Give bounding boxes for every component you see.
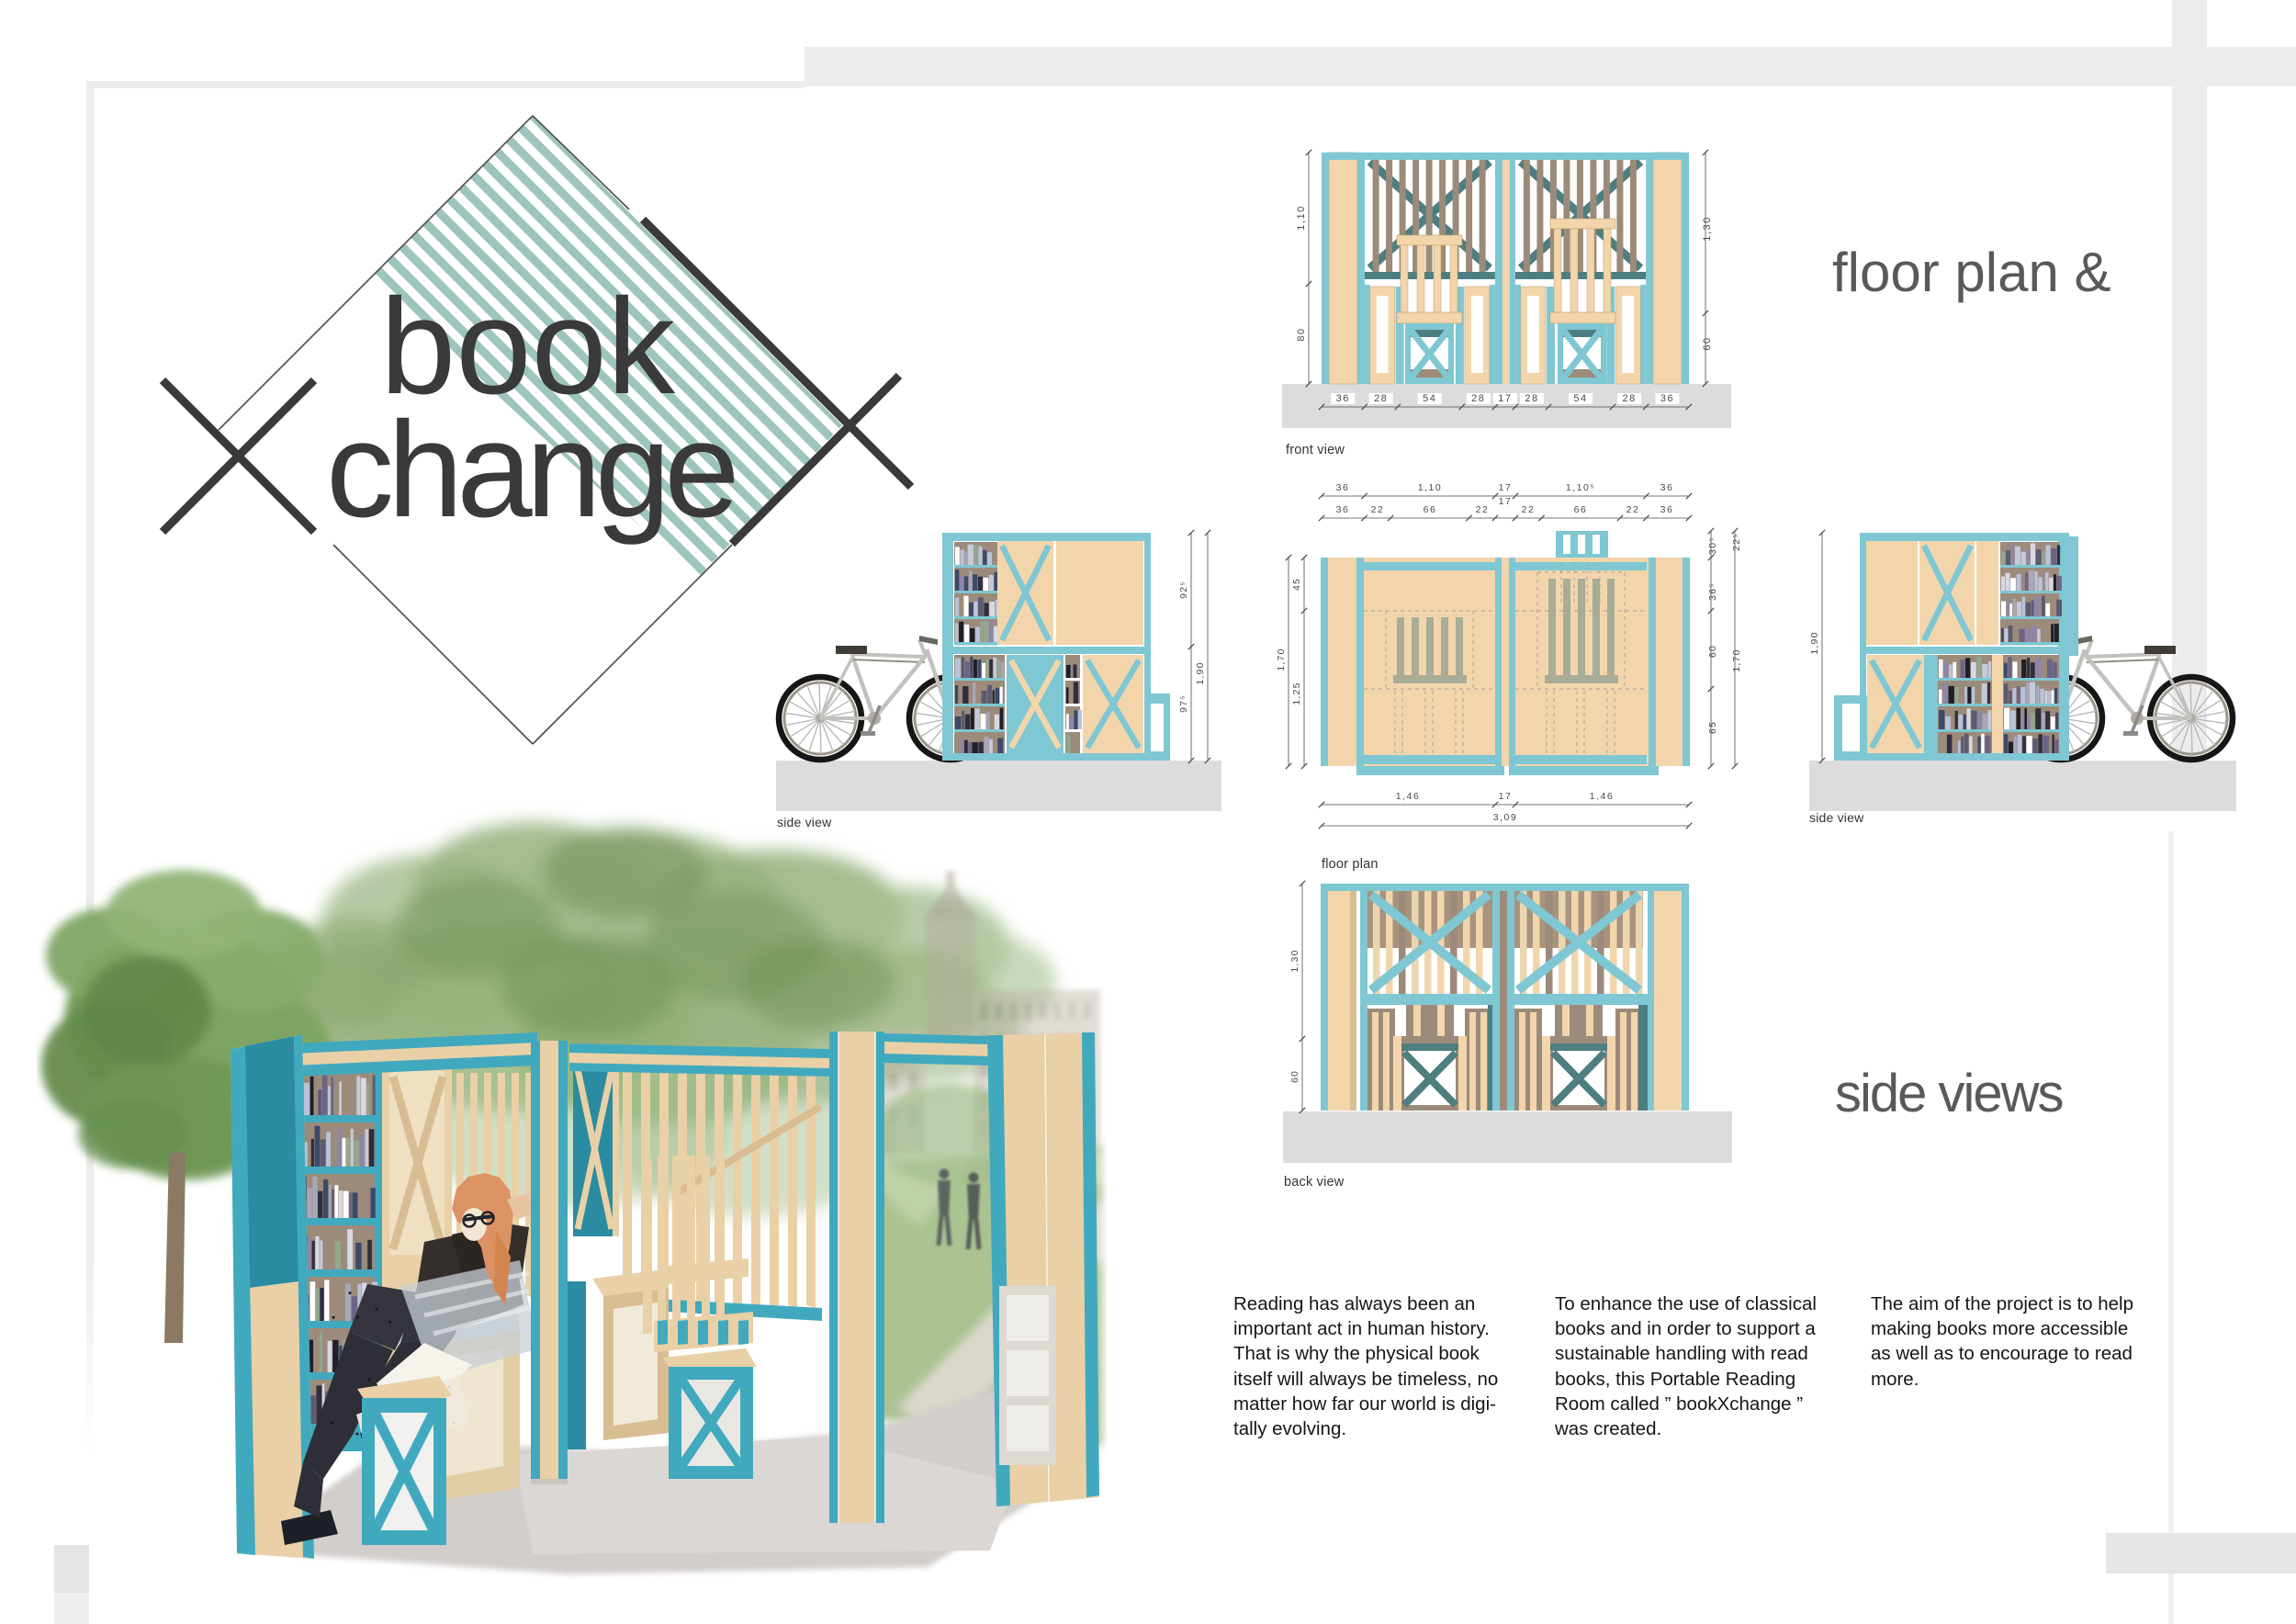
svg-text:30⁵: 30⁵ <box>1707 536 1718 555</box>
svg-text:36: 36 <box>1660 482 1674 493</box>
svg-text:28: 28 <box>1525 393 1538 404</box>
svg-text:22⁵: 22⁵ <box>1731 533 1742 551</box>
svg-text:28: 28 <box>1471 393 1485 404</box>
svg-text:1,10: 1,10 <box>1418 482 1442 493</box>
svg-text:54: 54 <box>1423 393 1436 404</box>
svg-text:60: 60 <box>1289 1070 1300 1083</box>
svg-text:1,46: 1,46 <box>1396 791 1420 802</box>
svg-text:1,90: 1,90 <box>1195 661 1206 684</box>
svg-text:22: 22 <box>1476 504 1490 515</box>
svg-text:1,30: 1,30 <box>1289 949 1300 972</box>
svg-text:side view: side view <box>777 815 832 829</box>
svg-text:92⁵: 92⁵ <box>1178 581 1189 599</box>
svg-text:36: 36 <box>1336 504 1350 515</box>
svg-text:36⁵: 36⁵ <box>1707 582 1718 601</box>
svg-text:80: 80 <box>1296 327 1307 341</box>
svg-text:97⁵: 97⁵ <box>1178 694 1189 713</box>
svg-text:65: 65 <box>1707 721 1718 734</box>
svg-text:1,46: 1,46 <box>1590 791 1614 802</box>
svg-text:17: 17 <box>1499 791 1513 802</box>
svg-text:36: 36 <box>1336 482 1350 493</box>
svg-text:54: 54 <box>1573 393 1587 404</box>
svg-text:1,70: 1,70 <box>1731 648 1742 671</box>
svg-text:45: 45 <box>1291 578 1302 591</box>
svg-text:60: 60 <box>1707 645 1718 658</box>
svg-text:66: 66 <box>1574 504 1588 515</box>
svg-text:36: 36 <box>1660 393 1674 404</box>
svg-text:3,09: 3,09 <box>1493 812 1517 823</box>
svg-text:66: 66 <box>1424 504 1437 515</box>
svg-text:36: 36 <box>1660 504 1674 515</box>
svg-text:front view: front view <box>1286 443 1345 457</box>
svg-text:60: 60 <box>1702 336 1713 350</box>
svg-text:22: 22 <box>1371 504 1385 515</box>
svg-text:17: 17 <box>1499 482 1513 493</box>
svg-text:28: 28 <box>1374 393 1388 404</box>
svg-text:17: 17 <box>1499 496 1513 507</box>
svg-text:36: 36 <box>1336 393 1350 404</box>
svg-text:side view: side view <box>1809 810 1864 825</box>
svg-text:1,30: 1,30 <box>1702 216 1713 241</box>
svg-text:1,70: 1,70 <box>1276 648 1287 671</box>
svg-text:1,90: 1,90 <box>1809 631 1820 654</box>
svg-text:28: 28 <box>1622 393 1636 404</box>
svg-text:1,10⁵: 1,10⁵ <box>1566 482 1595 493</box>
svg-text:17: 17 <box>1498 393 1512 404</box>
svg-text:22: 22 <box>1626 504 1640 515</box>
svg-text:1,10: 1,10 <box>1296 205 1307 230</box>
svg-text:back view: back view <box>1284 1175 1345 1190</box>
svg-text:1,25: 1,25 <box>1291 682 1302 705</box>
svg-text:change: change <box>326 394 734 546</box>
svg-text:22: 22 <box>1522 504 1536 515</box>
